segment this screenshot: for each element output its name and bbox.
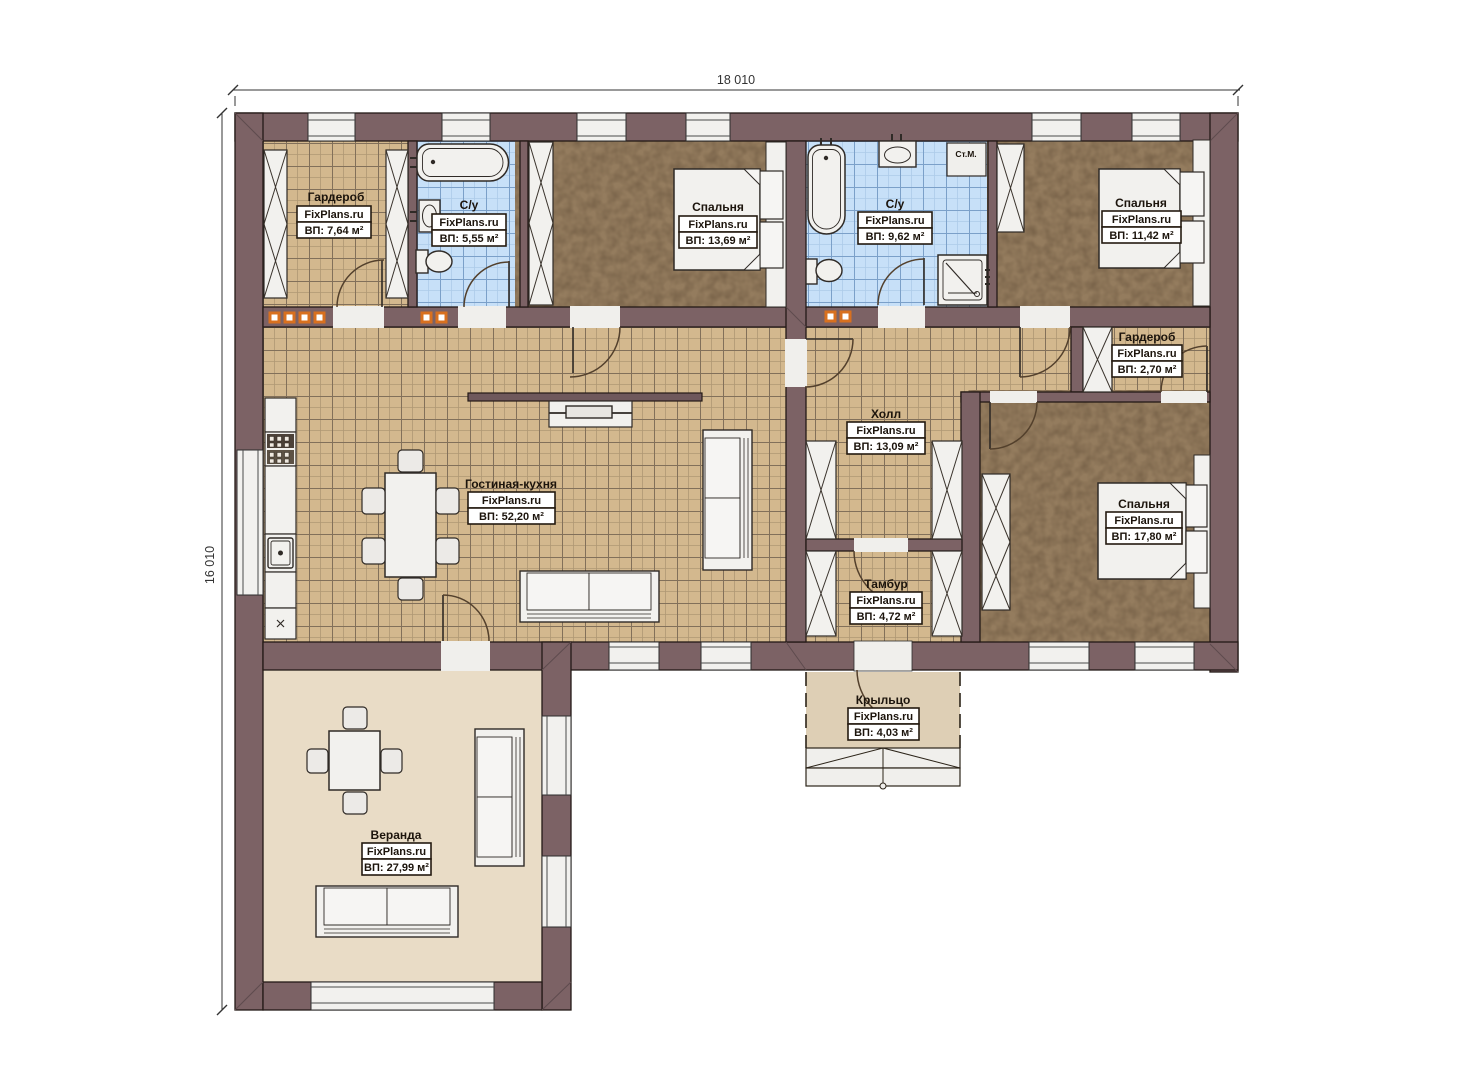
- svg-text:FixPlans.ru: FixPlans.ru: [367, 846, 426, 858]
- svg-text:FixPlans.ru: FixPlans.ru: [1114, 515, 1173, 527]
- svg-text:FixPlans.ru: FixPlans.ru: [856, 425, 915, 437]
- svg-text:Спальня: Спальня: [1118, 497, 1170, 511]
- svg-text:ВП: 13,09 м²: ВП: 13,09 м²: [854, 441, 919, 453]
- svg-text:Гостиная-кухня: Гостиная-кухня: [465, 477, 557, 491]
- svg-text:С/у: С/у: [460, 198, 479, 212]
- svg-text:FixPlans.ru: FixPlans.ru: [856, 595, 915, 607]
- svg-text:Крыльцо: Крыльцо: [856, 693, 911, 707]
- svg-text:FixPlans.ru: FixPlans.ru: [688, 219, 747, 231]
- svg-text:ВП: 5,55 м²: ВП: 5,55 м²: [440, 233, 499, 245]
- svg-text:FixPlans.ru: FixPlans.ru: [1117, 348, 1176, 360]
- svg-text:Тамбур: Тамбур: [864, 577, 908, 591]
- svg-text:Гардероб: Гардероб: [308, 190, 365, 204]
- svg-text:FixPlans.ru: FixPlans.ru: [482, 495, 541, 507]
- svg-text:FixPlans.ru: FixPlans.ru: [1112, 214, 1171, 226]
- svg-text:ВП: 2,70 м²: ВП: 2,70 м²: [1118, 364, 1177, 376]
- svg-text:FixPlans.ru: FixPlans.ru: [304, 209, 363, 221]
- svg-text:ВП: 52,20 м²: ВП: 52,20 м²: [479, 511, 544, 523]
- svg-text:Веранда: Веранда: [371, 828, 422, 842]
- svg-text:FixPlans.ru: FixPlans.ru: [854, 711, 913, 723]
- svg-text:ВП: 11,42 м²: ВП: 11,42 м²: [1109, 230, 1174, 242]
- svg-text:Гардероб: Гардероб: [1119, 330, 1176, 344]
- svg-text:Спальня: Спальня: [692, 200, 744, 214]
- svg-text:ВП: 4,72 м²: ВП: 4,72 м²: [857, 611, 916, 623]
- svg-text:ВП: 7,64 м²: ВП: 7,64 м²: [305, 225, 364, 237]
- svg-text:18 010: 18 010: [717, 73, 755, 87]
- svg-text:Ст.М.: Ст.М.: [955, 149, 976, 159]
- svg-text:FixPlans.ru: FixPlans.ru: [439, 217, 498, 229]
- svg-text:ВП: 4,03 м²: ВП: 4,03 м²: [854, 727, 913, 739]
- svg-text:ВП: 13,69 м²: ВП: 13,69 м²: [686, 235, 751, 247]
- svg-text:ВП: 27,99 м²: ВП: 27,99 м²: [364, 862, 429, 874]
- svg-text:ВП: 9,62 м²: ВП: 9,62 м²: [866, 231, 925, 243]
- svg-text:С/у: С/у: [886, 197, 905, 211]
- svg-text:16 010: 16 010: [203, 546, 217, 584]
- svg-text:Спальня: Спальня: [1115, 196, 1167, 210]
- svg-text:FixPlans.ru: FixPlans.ru: [865, 215, 924, 227]
- svg-text:Холл: Холл: [871, 407, 901, 421]
- svg-text:ВП: 17,80 м²: ВП: 17,80 м²: [1112, 531, 1177, 543]
